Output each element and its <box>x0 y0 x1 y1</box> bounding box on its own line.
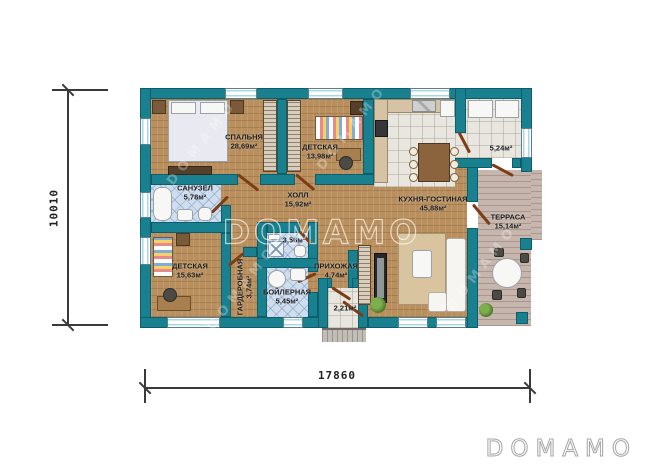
dining-chair-3 <box>409 173 418 182</box>
dining-table <box>418 143 450 182</box>
wall-living-right-a <box>467 166 478 202</box>
dining-chair-4 <box>450 147 459 156</box>
water-heater <box>290 268 306 281</box>
dim-line-horizontal <box>145 387 530 389</box>
room-label-boiler: БОЙЛЕРНАЯ 5,45м² <box>263 288 311 307</box>
window-tambour-right <box>521 128 532 158</box>
room-label-sanuzel: САНУЗЕЛ 5,78м² <box>177 184 213 203</box>
terrace-post-1 <box>520 238 532 250</box>
kitchen-sink <box>412 100 436 112</box>
window-living-bottom-1 <box>398 317 428 328</box>
window-sanuzel-left <box>140 192 151 218</box>
entrance-step <box>322 328 366 342</box>
room-label-kitchen-living: КУХНЯ-ГОСТИНАЯ 45,88м² <box>398 195 467 214</box>
room-name: ГАРДЕРОБНАЯ <box>236 259 245 315</box>
watermark-center: DOMAMO <box>223 213 422 252</box>
plant-terrace <box>479 303 493 317</box>
terrace-post-2 <box>516 312 528 324</box>
fridge <box>440 100 455 117</box>
boiler-tank <box>268 270 286 288</box>
kids1-chair <box>339 156 353 170</box>
room-label-tambour: 5,24м² <box>490 143 513 152</box>
room-label-hall: ХОЛЛ 15,92м² <box>285 191 312 210</box>
tambour-wardrobe-1 <box>468 100 493 118</box>
room-area: 3,74м² <box>245 259 254 315</box>
dim-ext-bottom <box>52 324 108 326</box>
room-label-wardrobe: ГАРДЕРОБНАЯ 3,74м² <box>236 259 255 315</box>
room-name: СПАЛЬНЯ <box>225 133 263 142</box>
dining-chair-5 <box>450 160 459 169</box>
room-area: 28,69м² <box>225 142 263 151</box>
room-area: 5,45м² <box>263 297 311 306</box>
terrace-chair-2 <box>520 253 529 263</box>
room-area: 5,78м² <box>177 193 213 202</box>
tv-screen <box>377 258 384 298</box>
room-label-terrace: ТЕРРАСА 15,14м² <box>491 213 526 232</box>
room-area: 15,63м² <box>172 271 208 280</box>
stove <box>375 120 388 137</box>
room-name: ДЕТСКАЯ <box>172 262 208 271</box>
kids2-chair <box>163 288 177 302</box>
kids2-nightstand <box>176 233 190 246</box>
terrace-deck-bump <box>531 170 542 240</box>
window-bedroom-left <box>140 118 151 145</box>
dining-chair-1 <box>409 147 418 156</box>
coffee-table <box>412 250 432 278</box>
room-name: ПРИХОЖАЯ <box>314 262 358 271</box>
window-living-bottom-2 <box>436 317 466 328</box>
wardrobe-cabinet-bedroom <box>263 100 277 172</box>
wall-hall-c <box>315 174 374 185</box>
room-label-bedroom: СПАЛЬНЯ 28,69м² <box>225 133 263 152</box>
window-kitchen-top <box>410 88 450 99</box>
bed-pillow-1 <box>171 102 196 114</box>
room-name: КУХНЯ-ГОСТИНАЯ <box>398 195 467 204</box>
wardrobe-cabinet-kids1 <box>287 100 301 172</box>
room-area: 13,98м² <box>302 152 338 161</box>
wall-tambour-left <box>455 88 466 133</box>
kids2-bed <box>153 237 173 277</box>
room-name: ДЕТСКАЯ <box>302 143 338 152</box>
room-area: 5,24м² <box>490 143 513 152</box>
dining-chair-6 <box>450 173 459 182</box>
room-label-kids1: ДЕТСКАЯ 13,98м² <box>302 143 338 162</box>
bathtub <box>153 187 172 221</box>
room-name: ХОЛЛ <box>285 191 312 200</box>
plant-living <box>370 297 386 313</box>
living-shelf <box>358 245 371 305</box>
terrace-chair-4 <box>517 288 526 298</box>
room-area: 4,74м² <box>314 271 358 280</box>
room-name: САНУЗЕЛ <box>177 184 213 193</box>
terrace-chair-3 <box>492 290 502 300</box>
room-label-kids2: ДЕТСКАЯ 15,63м² <box>172 262 208 281</box>
wall-porch-left <box>318 278 328 328</box>
dim-line-vertical <box>67 90 69 326</box>
wall-bedroom-kids <box>277 99 287 174</box>
window-boiler-bottom <box>283 317 303 328</box>
wall-sanuzel-bottom <box>151 222 231 233</box>
nightstand-left <box>152 100 166 114</box>
window-kids1-top <box>308 88 343 99</box>
brand-logo: DOMAMO <box>486 436 637 462</box>
window-kids2-left <box>140 237 151 265</box>
room-label-porch: 2,21м² <box>334 303 357 312</box>
terrace-table <box>492 258 522 288</box>
dim-label-horizontal: 17860 <box>318 369 356 382</box>
wall-tambour-bottom-b <box>512 158 521 168</box>
kitchen-counter-left <box>374 99 388 183</box>
dining-chair-2 <box>409 160 418 169</box>
dim-label-vertical: 10010 <box>48 189 61 227</box>
sanuzel-toilet <box>198 207 212 221</box>
room-area: 15,92м² <box>285 200 312 209</box>
room-area: 2,21м² <box>334 303 357 312</box>
room-label-entry-hall: ПРИХОЖАЯ 4,74м² <box>314 262 358 281</box>
floor-plan-canvas: DOMAMO DOMAMO DOMAMO DOMAMO СПАЛЬНЯ 28,6… <box>0 0 648 470</box>
sofa-chaise <box>428 292 447 312</box>
dim-ext-top <box>52 89 108 91</box>
room-area: 15,14м² <box>491 222 526 231</box>
room-name: БОЙЛЕРНАЯ <box>263 288 311 297</box>
wall-tambour-bottom-a <box>455 158 492 168</box>
wall-hall-b <box>260 174 295 185</box>
sanuzel-sink <box>177 209 193 221</box>
tambour-wardrobe-2 <box>495 100 519 118</box>
room-name: ТЕРРАСА <box>491 213 526 222</box>
